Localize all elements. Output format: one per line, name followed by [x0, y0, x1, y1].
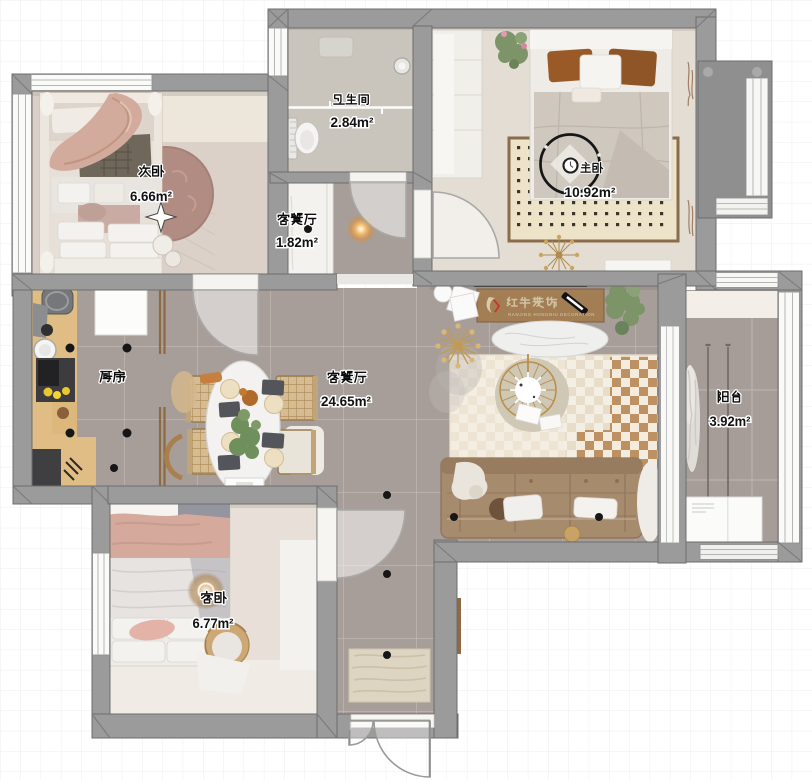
- svg-text:10.92m²: 10.92m²: [565, 185, 616, 200]
- svg-text:6.77m²: 6.77m²: [193, 616, 234, 631]
- svg-text:24.65m²: 24.65m²: [321, 394, 371, 409]
- svg-text:NANJING HONGNIU DECORATION: NANJING HONGNIU DECORATION: [508, 312, 595, 317]
- svg-text:6.66m²: 6.66m²: [130, 189, 172, 204]
- svg-text:1.82m²: 1.82m²: [276, 235, 318, 250]
- svg-text:2.84m²: 2.84m²: [331, 115, 374, 130]
- svg-text:3.92m²: 3.92m²: [710, 414, 751, 429]
